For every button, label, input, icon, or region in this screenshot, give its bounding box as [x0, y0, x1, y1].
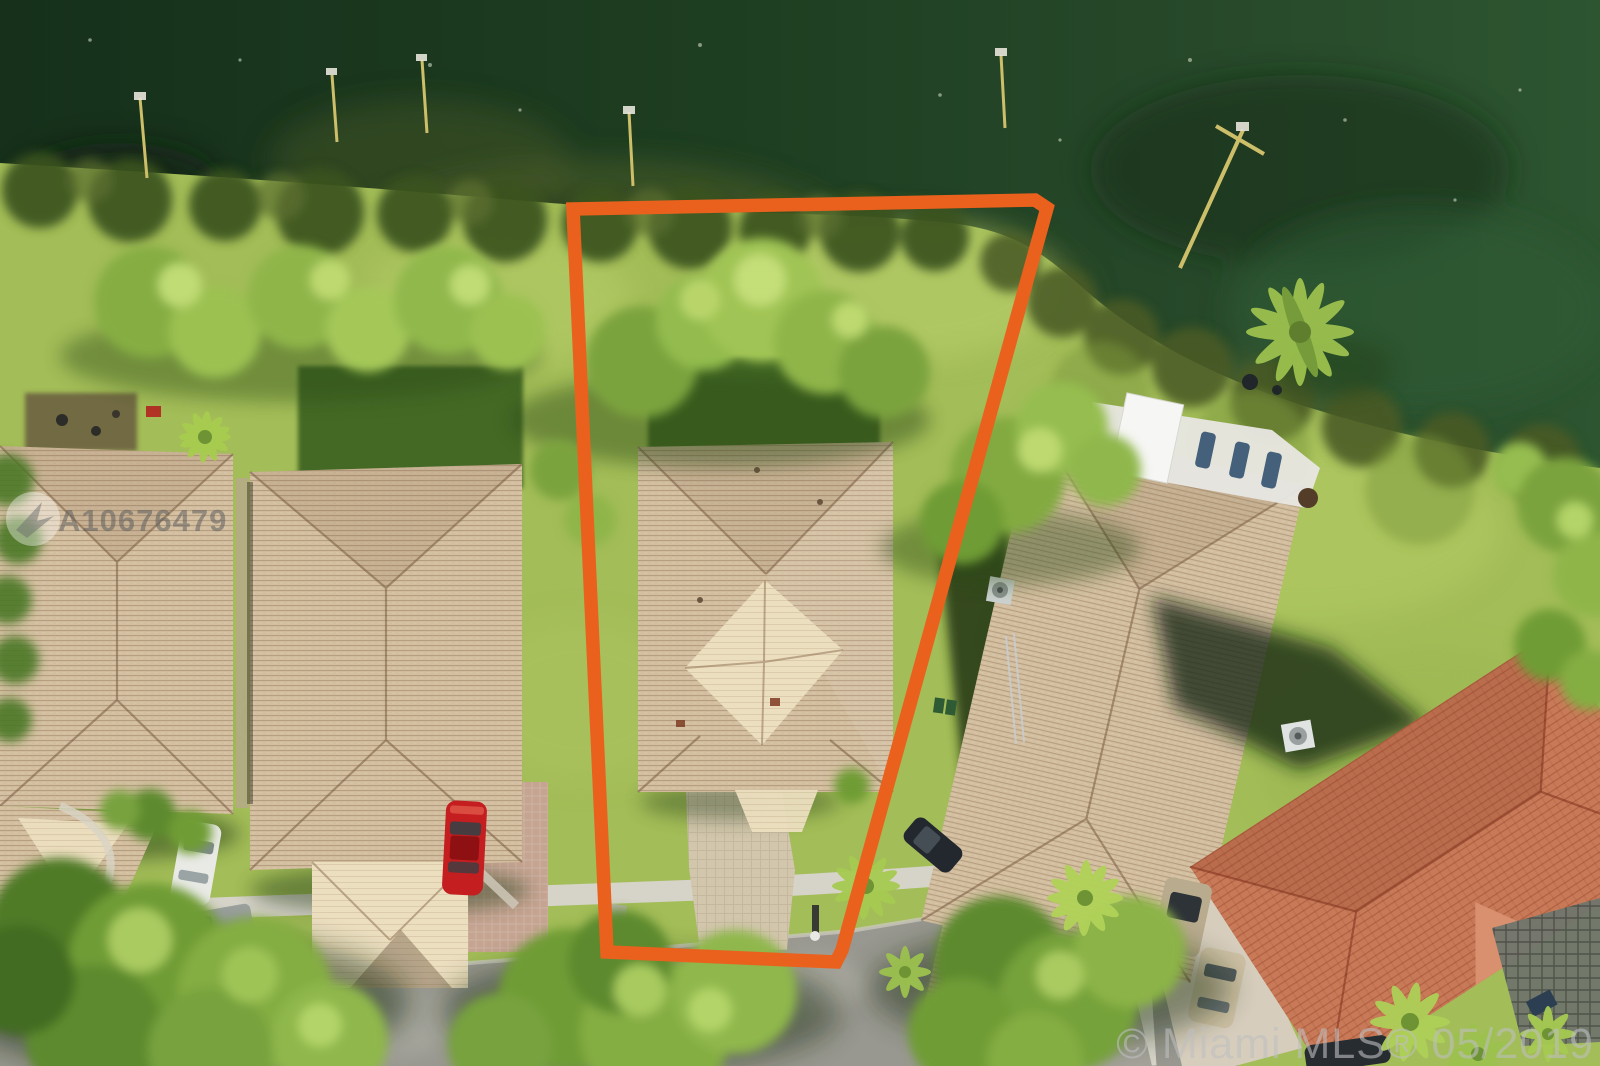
watermark-listing-id: A10676479	[58, 503, 227, 538]
dirt-patio-patch	[25, 393, 137, 451]
watermark-mls-credit: © Miami MLS® 05/2019	[1116, 1020, 1594, 1066]
planter-barrel	[1298, 488, 1318, 508]
red-yard-item	[146, 406, 161, 417]
car-red	[442, 800, 488, 896]
tree-canopy-upper-left	[60, 245, 546, 402]
watermark-logo	[6, 492, 60, 546]
ac-unit-far-right	[1281, 720, 1315, 753]
aerial-photo: A10676479 © Miami MLS® 05/2019	[0, 0, 1600, 1066]
patio-table	[1242, 374, 1258, 390]
